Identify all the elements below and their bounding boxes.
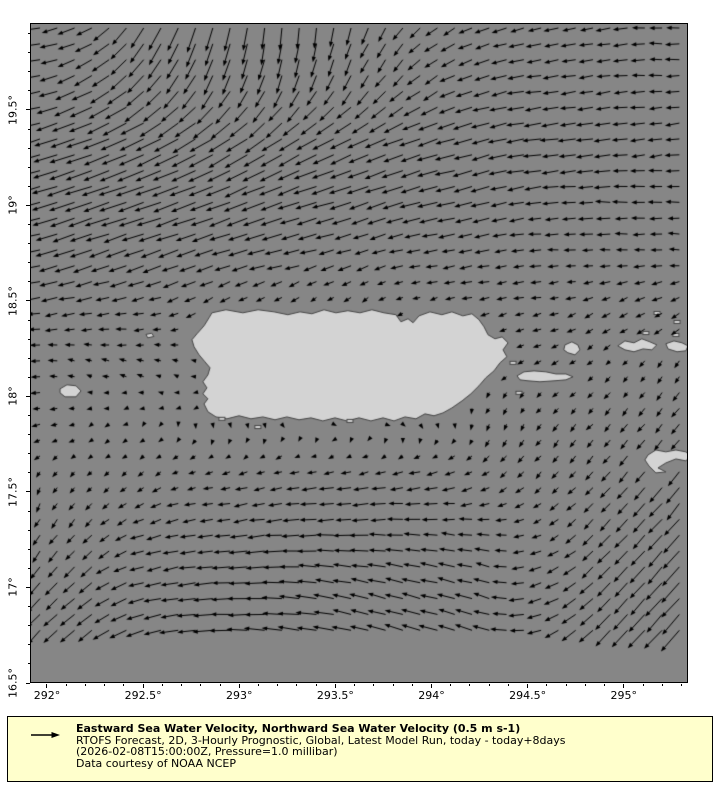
x-minor-tick [66,684,67,686]
x-minor-tick [662,684,663,686]
reference-arrow-icon [30,729,60,741]
x-minor-tick [412,684,413,686]
x-minor-tick [585,684,586,686]
y-tick-label: 18.5° [7,286,20,316]
x-minor-tick [104,684,105,686]
y-tick-label: 19° [7,196,20,216]
legend-box: Eastward Sea Water Velocity, Northward S… [7,716,713,782]
y-minor-tick [28,606,30,607]
x-minor-tick [643,684,644,686]
y-minor-tick [28,33,30,34]
legend-credit-line: Data courtesy of NOAA NCEP [76,758,566,770]
y-minor-tick [28,167,30,168]
y-minor-tick [28,148,30,149]
y-minor-tick [28,243,30,244]
y-tick-label: 17.5° [7,477,20,507]
x-major-tick [143,684,144,688]
legend-text-block: Eastward Sea Water Velocity, Northward S… [76,723,566,769]
y-minor-tick [28,663,30,664]
x-minor-tick [200,684,201,686]
y-minor-tick [28,281,30,282]
y-major-tick [26,587,30,588]
y-minor-tick [28,71,30,72]
legend-run-line: (2026-02-08T15:00:00Z, Pressure=1.0 mill… [76,746,566,758]
y-minor-tick [28,472,30,473]
y-minor-tick [28,625,30,626]
y-minor-tick [28,549,30,550]
x-minor-tick [373,684,374,686]
y-minor-tick [28,186,30,187]
x-minor-tick [123,684,124,686]
x-tick-label: 293.5° [317,689,354,702]
y-minor-tick [28,530,30,531]
x-minor-tick [354,684,355,686]
x-major-tick [431,684,432,688]
x-minor-tick [489,684,490,686]
x-minor-tick [450,684,451,686]
y-major-tick [26,683,30,684]
y-minor-tick [28,644,30,645]
x-minor-tick [566,684,567,686]
x-major-tick [527,684,528,688]
y-minor-tick [28,262,30,263]
x-minor-tick [469,684,470,686]
y-tick-label: 18° [7,387,20,407]
x-minor-tick [277,684,278,686]
x-minor-tick [393,684,394,686]
velocity-map-figure: 292°292.5°293°293.5°294°294.5°295°16.5°1… [0,0,720,800]
x-major-tick [46,684,47,688]
y-minor-tick [28,52,30,53]
y-major-tick [26,300,30,301]
y-minor-tick [28,434,30,435]
x-minor-tick [220,684,221,686]
x-minor-tick [258,684,259,686]
y-minor-tick [28,224,30,225]
x-major-tick [239,684,240,688]
x-minor-tick [681,684,682,686]
legend-title: Eastward Sea Water Velocity, Northward S… [76,723,566,735]
x-tick-label: 293° [226,689,253,702]
y-minor-tick [28,339,30,340]
x-major-tick [623,684,624,688]
x-tick-label: 294.5° [509,689,546,702]
y-minor-tick [28,511,30,512]
y-major-tick [26,109,30,110]
x-minor-tick [316,684,317,686]
y-major-tick [26,396,30,397]
y-minor-tick [28,377,30,378]
y-major-tick [26,491,30,492]
x-minor-tick [85,684,86,686]
x-tick-label: 295° [611,689,638,702]
y-minor-tick [28,90,30,91]
x-minor-tick [604,684,605,686]
y-minor-tick [28,453,30,454]
x-minor-tick [162,684,163,686]
y-minor-tick [28,320,30,321]
y-minor-tick [28,129,30,130]
x-tick-label: 294° [418,689,445,702]
x-tick-label: 292.5° [125,689,162,702]
x-minor-tick [181,684,182,686]
x-minor-tick [296,684,297,686]
x-major-tick [335,684,336,688]
x-tick-label: 292° [34,689,61,702]
y-tick-label: 17° [7,578,20,598]
x-minor-tick [508,684,509,686]
y-minor-tick [28,568,30,569]
x-minor-tick [546,684,547,686]
y-tick-label: 16.5° [7,668,20,698]
y-major-tick [26,205,30,206]
y-minor-tick [28,358,30,359]
y-tick-label: 19.5° [7,95,20,125]
y-minor-tick [28,415,30,416]
sea-water-velocity-quiver-map [31,24,688,683]
